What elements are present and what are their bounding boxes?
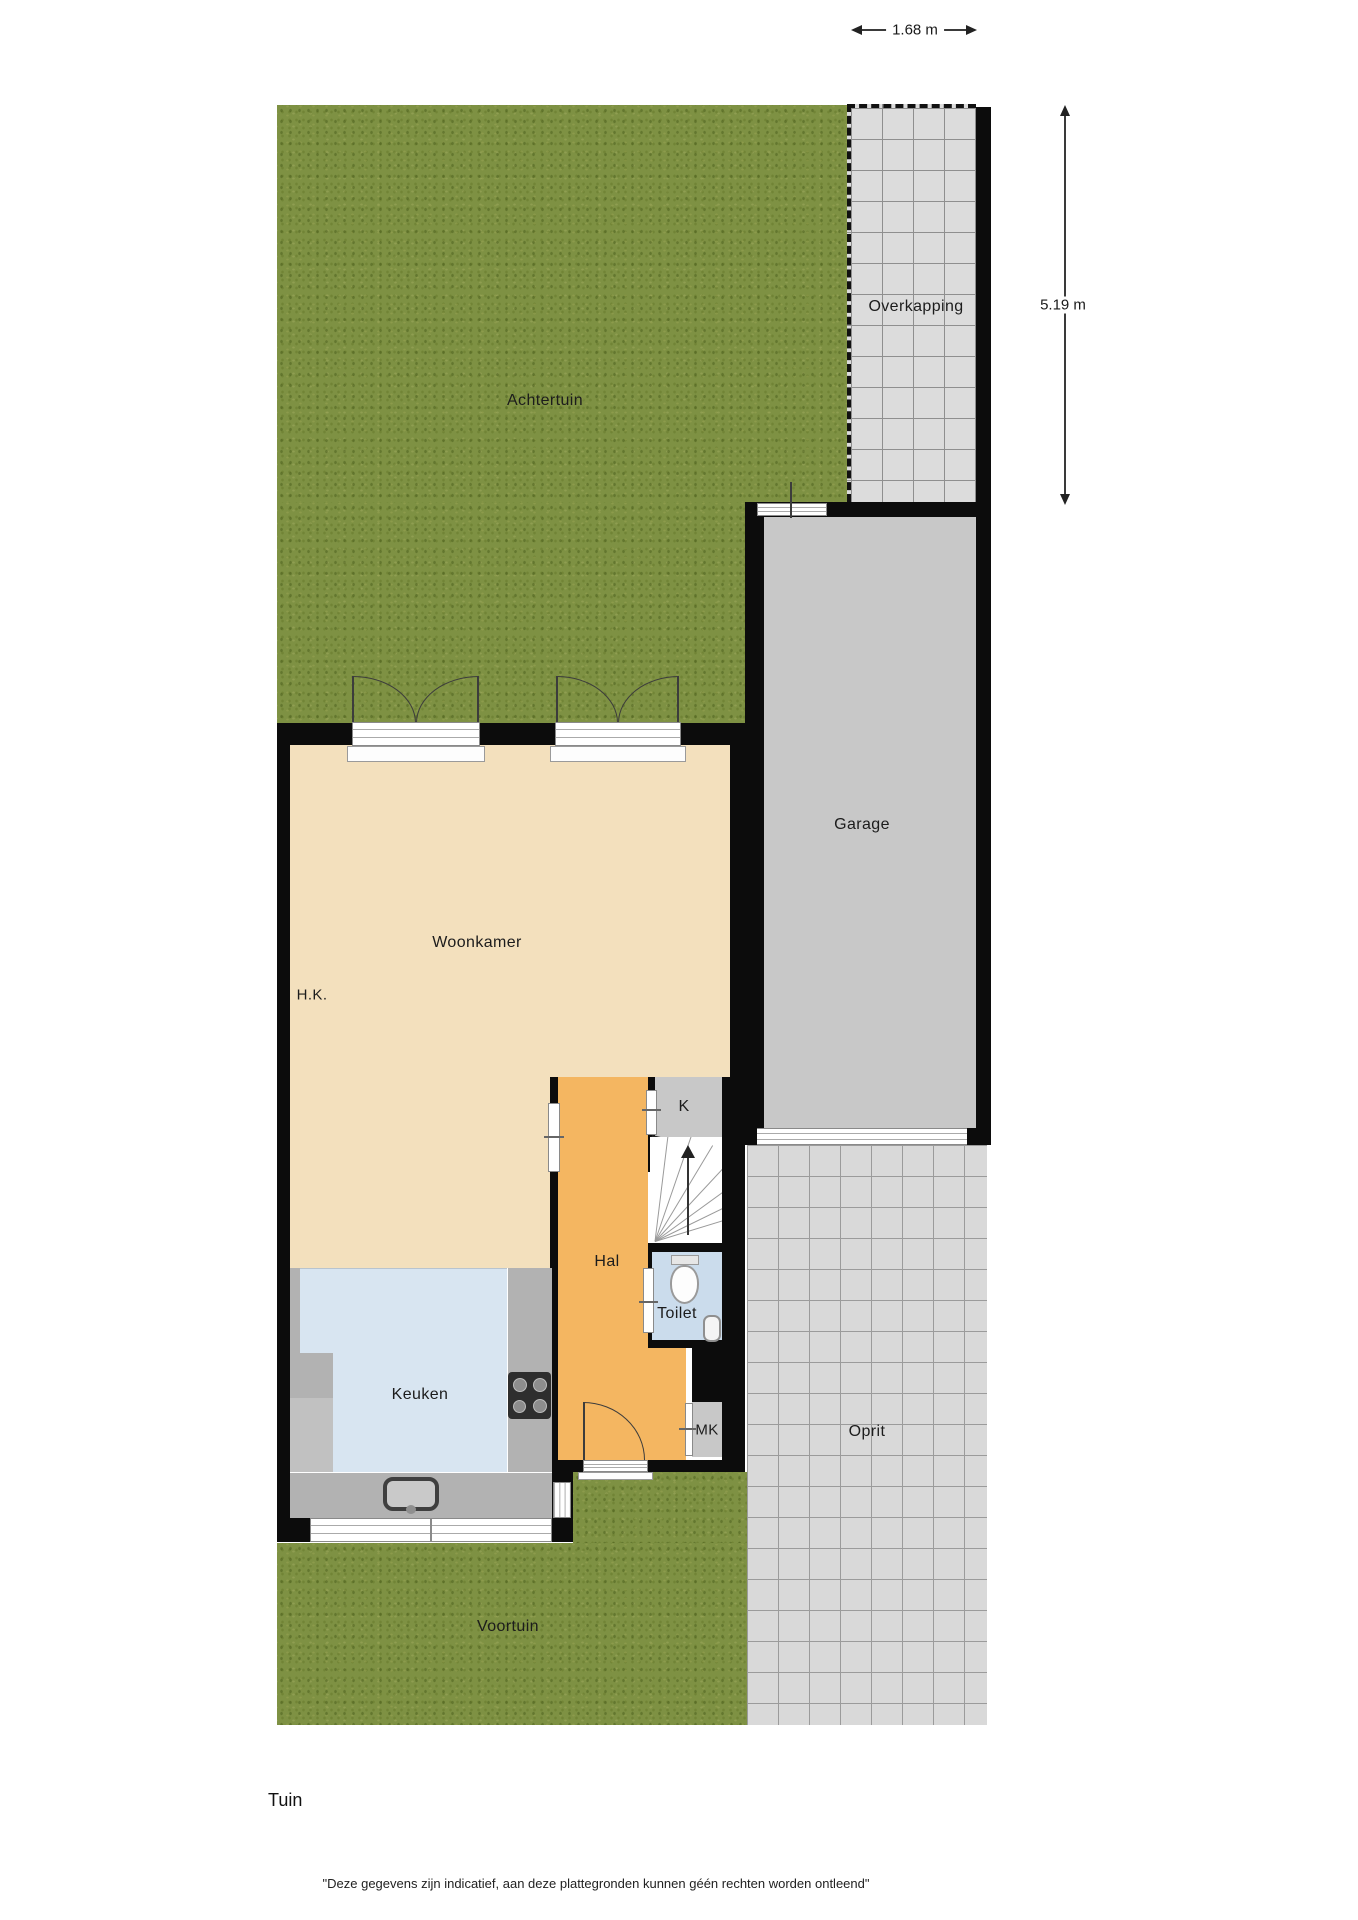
toilet-label: Toilet	[657, 1305, 697, 1323]
hk-label: H.K.	[297, 987, 328, 1004]
keuken-counter-left-strip	[290, 1268, 300, 1353]
terrace-door-left-sill	[347, 746, 485, 762]
dim-top-label: 1.68 m	[886, 22, 944, 39]
terrace-door-left	[352, 722, 480, 746]
wall-top-b	[480, 723, 555, 745]
wall-toilet-top	[645, 1243, 745, 1252]
overkapping-label: Overkapping	[868, 298, 963, 316]
woonkamer-floor	[290, 745, 730, 1077]
wall-hal-right	[722, 1060, 745, 1472]
dim-right-arrow-down-icon	[1060, 494, 1070, 505]
wall-front-corner-left	[277, 1518, 310, 1542]
keuken-label: Keuken	[392, 1386, 449, 1404]
keuken-counter-right	[507, 1268, 552, 1472]
woonkamer-floor-lower	[290, 1077, 550, 1268]
wall-mk-top	[692, 1348, 722, 1402]
wall-front-b	[648, 1460, 722, 1472]
wall-top-a	[277, 723, 352, 745]
front-door-leaf	[583, 1402, 585, 1460]
toilet-wc-tank	[671, 1255, 699, 1265]
garage-door-post-right	[967, 1128, 976, 1145]
stairs-up-arrow-icon	[681, 1145, 695, 1158]
garage-overhead-door	[748, 1128, 976, 1145]
oprit-label: Oprit	[849, 1423, 886, 1441]
terrace-door-right	[555, 722, 681, 746]
dim-top-arrow-right-icon	[966, 25, 977, 35]
toilet-wc-bowl	[670, 1265, 699, 1304]
garage-back-door-leaf	[790, 482, 792, 518]
terrace-door-left-leaf	[352, 676, 354, 724]
wall-toilet-bottom	[645, 1340, 745, 1348]
garage-door-post-left	[748, 1128, 757, 1145]
hal-label: Hal	[594, 1253, 619, 1271]
k-label: K	[678, 1098, 689, 1116]
keuken-cabinet-left	[290, 1398, 333, 1472]
achtertuin-area	[277, 105, 850, 502]
terrace-door-left-leaf2	[477, 676, 479, 724]
terrace-door-right-leaf	[556, 676, 558, 724]
toilet-sink	[703, 1315, 721, 1342]
keuken-front-window-divider	[430, 1519, 432, 1541]
achtertuin-label: Achtertuin	[507, 392, 583, 410]
front-door-threshold	[578, 1472, 653, 1480]
keuken-counter-left	[290, 1353, 333, 1398]
stairs-direction-line	[687, 1155, 689, 1235]
kitchen-sink-tap	[406, 1505, 416, 1514]
stairs	[650, 1137, 722, 1243]
terrace-door-right-sill	[550, 746, 686, 762]
entry-side-window	[553, 1482, 571, 1518]
k-closet-door-tick	[642, 1109, 661, 1111]
disclaimer-text: "Deze gegevens zijn indicatief, aan deze…	[323, 1876, 870, 1891]
garage-label: Garage	[834, 816, 890, 834]
wall-left	[277, 723, 290, 1520]
k-closet-door	[646, 1090, 657, 1135]
voortuin-label: Voortuin	[477, 1618, 539, 1636]
garage-back-door	[757, 503, 827, 516]
floorplan-canvas: 1.68 m 5.19 m Achtertuin Overkapping Gar…	[0, 0, 1358, 1920]
mk-label: MK	[695, 1422, 718, 1439]
dim-right-label: 5.19 m	[1034, 297, 1092, 314]
wall-front-a	[552, 1460, 583, 1472]
toilet-door-tick	[639, 1301, 658, 1303]
wall-woonkamer-right	[730, 723, 764, 1077]
mk-door-tick	[679, 1428, 696, 1430]
woonkamer-hal-opening-tick	[544, 1136, 564, 1138]
dim-right-arrow-up-icon	[1060, 105, 1070, 116]
voortuin-area-entry	[573, 1472, 747, 1543]
front-door	[583, 1460, 648, 1472]
woonkamer-label: Woonkamer	[432, 934, 522, 952]
wall-right-outer	[976, 107, 991, 1145]
terrace-door-right-leaf2	[677, 676, 679, 724]
floor-caption: Tuin	[268, 1790, 302, 1811]
dim-top-arrow-left-icon	[851, 25, 862, 35]
hal-floor-east	[645, 1348, 686, 1460]
cooktop	[508, 1372, 551, 1419]
